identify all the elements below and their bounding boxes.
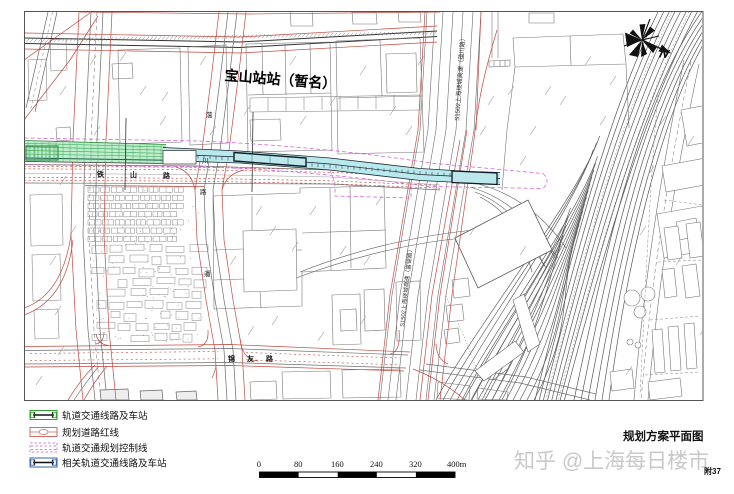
- svg-text:0: 0: [257, 459, 261, 469]
- svg-text:160: 160: [331, 459, 344, 469]
- svg-text:蕰: 蕰: [206, 110, 213, 119]
- svg-text:规划方案平面图: 规划方案平面图: [623, 429, 704, 443]
- svg-text:路: 路: [163, 171, 171, 180]
- svg-text:320: 320: [409, 459, 422, 469]
- svg-text:铁: 铁: [97, 170, 104, 179]
- svg-text:附37: 附37: [704, 466, 721, 476]
- svg-text:轨道交通规划控制线: 轨道交通规划控制线: [62, 443, 148, 455]
- svg-text:80: 80: [294, 459, 303, 469]
- svg-text:规划道路红线: 规划道路红线: [62, 427, 120, 439]
- svg-text:川: 川: [202, 158, 209, 165]
- svg-text:轨道交通线路及车站: 轨道交通线路及车站: [62, 410, 148, 422]
- svg-text:友: 友: [246, 354, 254, 363]
- svg-text:知乎 @上海每日楼市: 知乎 @上海每日楼市: [514, 450, 709, 473]
- svg-text:路: 路: [200, 187, 207, 196]
- svg-text:锦: 锦: [228, 354, 235, 363]
- svg-text:240: 240: [370, 459, 383, 469]
- svg-text:山: 山: [130, 170, 137, 179]
- svg-text:相关轨道交通线路及车站: 相关轨道交通线路及车站: [62, 458, 167, 470]
- svg-text:路: 路: [266, 354, 274, 363]
- svg-text:潘: 潘: [204, 269, 211, 278]
- svg-text:400m: 400m: [447, 459, 467, 469]
